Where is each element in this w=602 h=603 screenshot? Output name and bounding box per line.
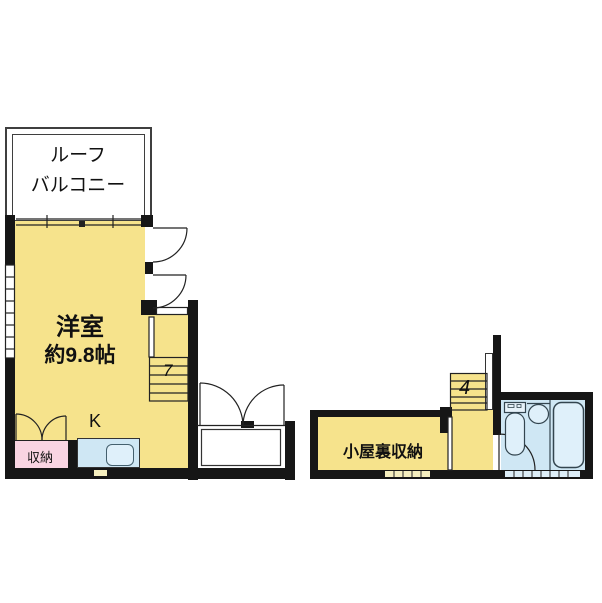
kitchen-label: K <box>89 411 101 432</box>
main-room-size: 約9.8帖 <box>15 342 145 369</box>
floorplan-linework <box>0 0 602 603</box>
balcony-window <box>16 215 141 228</box>
bathroom-fixtures <box>505 400 584 470</box>
left-wall-window <box>6 265 15 358</box>
storage-partition <box>448 417 452 470</box>
toilet-bowl <box>506 413 525 455</box>
main-room-name: 洋室 <box>15 314 145 342</box>
bottom-window-ticks <box>394 471 568 477</box>
kitchen-window <box>157 308 188 315</box>
stair-partition <box>149 317 154 357</box>
closet-double-door <box>16 414 66 440</box>
door-main-upper <box>153 228 187 262</box>
attic-storage-label: 小屋裏収納 <box>318 438 448 462</box>
entrance-double-door <box>197 383 285 426</box>
floor-plan: ルーフ バルコニー 洋室 約9.8帖 K 収納 小屋裏収納 7 4 <box>0 0 602 603</box>
roof-balcony-label-line1: ルーフ <box>10 141 146 171</box>
stairs-main-mark: 7 <box>163 361 172 381</box>
stairs-right-mark: 4 <box>459 377 470 400</box>
roof-balcony-label: ルーフ バルコニー <box>10 141 146 201</box>
closet-label: 収納 <box>12 447 68 466</box>
bathtub <box>554 403 584 468</box>
washbasin <box>529 405 549 424</box>
main-room-label: 洋室 約9.8帖 <box>15 314 145 369</box>
roof-balcony-label-line2: バルコニー <box>10 171 146 201</box>
door-main-lower <box>153 275 186 308</box>
porch-step <box>202 430 281 466</box>
